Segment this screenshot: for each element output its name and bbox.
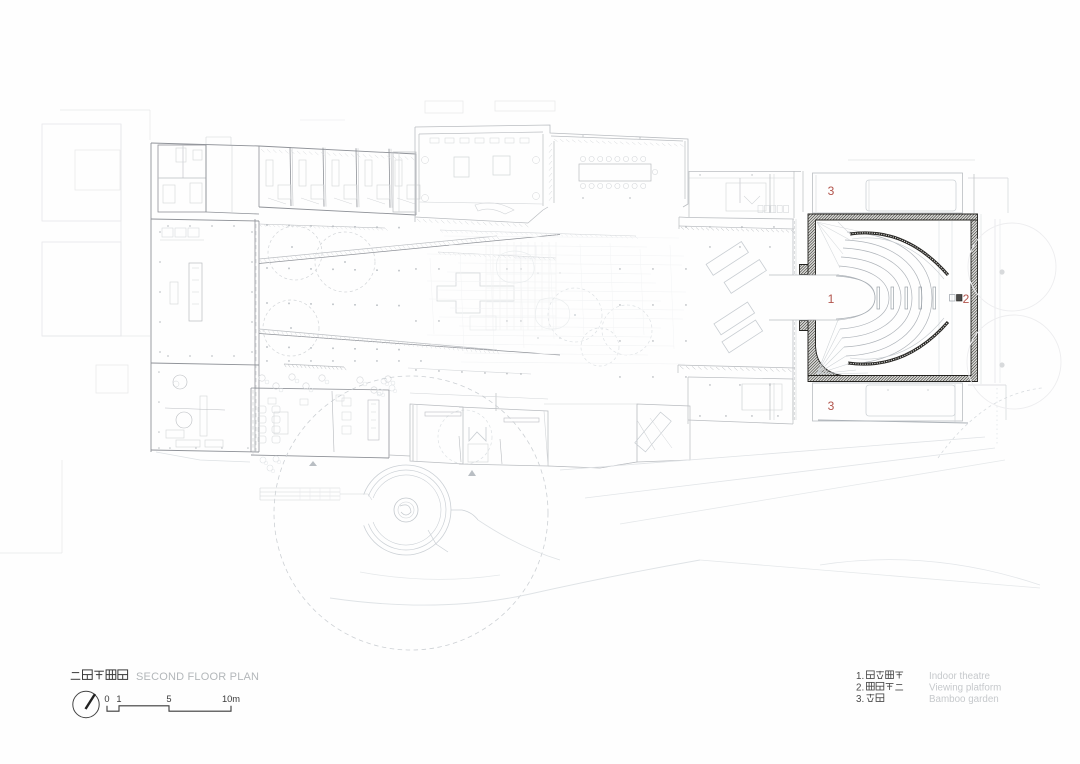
svg-text:Viewing platform: Viewing platform: [929, 683, 1001, 694]
svg-text:Indoor theatre: Indoor theatre: [929, 671, 991, 682]
svg-text:SECOND FLOOR PLAN: SECOND FLOOR PLAN: [136, 671, 259, 683]
svg-text:0: 0: [104, 694, 109, 704]
svg-text:5: 5: [166, 694, 171, 704]
svg-text:1.: 1.: [856, 671, 864, 682]
svg-text:2: 2: [963, 292, 970, 306]
svg-text:1: 1: [828, 292, 835, 306]
svg-text:1: 1: [116, 694, 121, 704]
svg-text:3: 3: [828, 399, 835, 413]
svg-text:2.: 2.: [856, 683, 864, 694]
svg-text:3: 3: [828, 184, 835, 198]
svg-text:10m: 10m: [222, 694, 240, 704]
svg-text:3.: 3.: [856, 694, 864, 705]
svg-text:Bamboo garden: Bamboo garden: [929, 694, 999, 705]
